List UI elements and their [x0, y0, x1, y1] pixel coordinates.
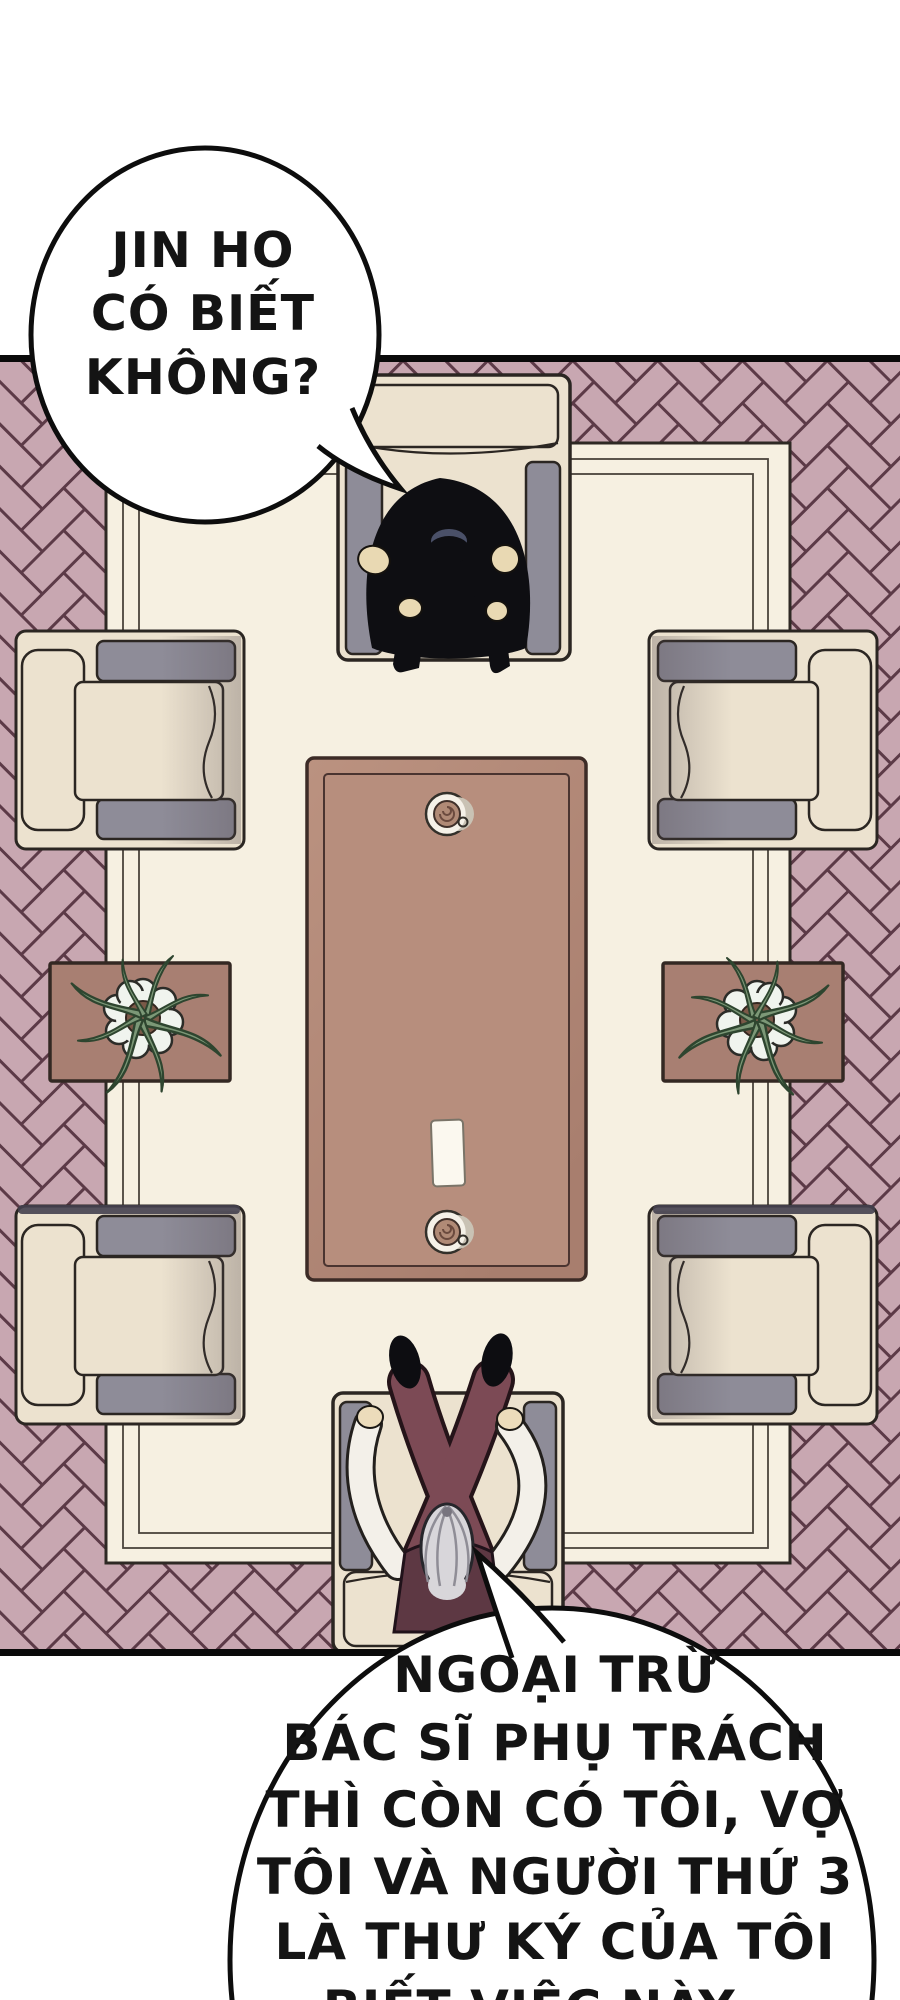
- armchair-lower-left: [16, 1206, 244, 1424]
- scene-canvas: JIN HO CÓ BIẾT KHÔNG? NGOẠI TRỪ BÁC SĨ P…: [0, 0, 900, 2000]
- right-hand: [497, 1408, 523, 1430]
- left-hand: [357, 1406, 383, 1428]
- chair-shadow-left: [18, 1205, 240, 1214]
- napkin: [431, 1119, 465, 1186]
- bubble-bottom-line-1: NGOẠI TRỪ: [393, 1645, 716, 1704]
- bubble-bottom-line-5: LÀ THƯ KÝ CỦA TÔI: [274, 1907, 835, 1971]
- bubble-bottom-line-3: THÌ CÒN CÓ TÔI, VỢ: [265, 1780, 844, 1839]
- bubble-bottom-line-2: BÁC SĨ PHỤ TRÁCH: [282, 1713, 827, 1772]
- speech-bubble-top: JIN HO CÓ BIẾT KHÔNG?: [31, 148, 401, 522]
- bubble-top-line-3: KHÔNG?: [85, 347, 321, 406]
- armchair-upper-right: [649, 631, 877, 849]
- bubble-top-line-2: CÓ BIẾT: [91, 277, 315, 342]
- armchair-upper-left: [16, 631, 244, 849]
- bubble-top-line-1: JIN HO: [108, 222, 294, 279]
- comic-panel: JIN HO CÓ BIẾT KHÔNG? NGOẠI TRỪ BÁC SĨ P…: [0, 0, 900, 2000]
- coffee-table: [307, 758, 586, 1280]
- armchair-lower-right: [649, 1206, 877, 1424]
- bubble-bottom-line-4: TÔI VÀ NGƯỜI THỨ 3: [257, 1847, 853, 1906]
- chair-shadow-right: [653, 1205, 875, 1214]
